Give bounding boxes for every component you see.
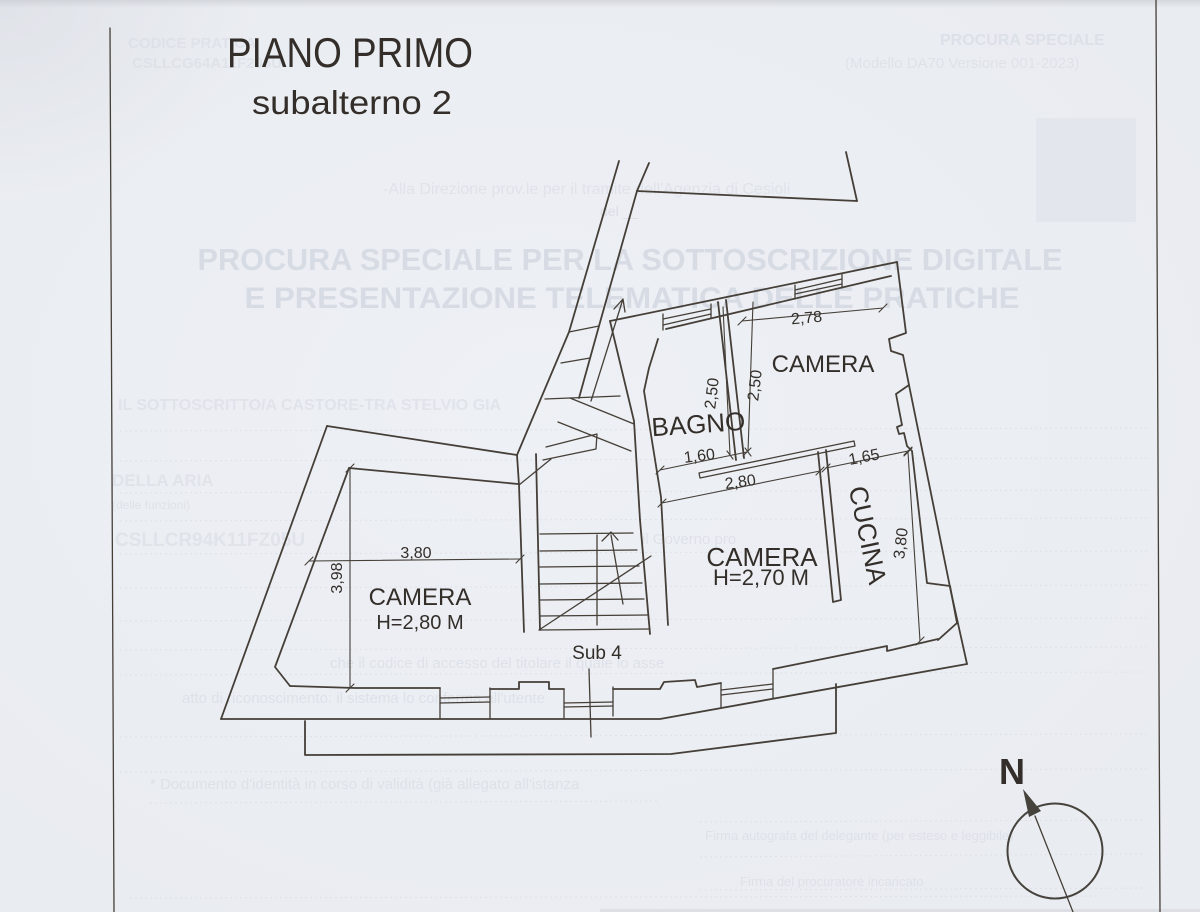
svg-text:H=2,70 M: H=2,70 M	[713, 565, 809, 590]
svg-text:CAMERA: CAMERA	[772, 351, 875, 378]
svg-text:IL SOTTOSCRITTO/A CASTORE-TRA: IL SOTTOSCRITTO/A CASTORE-TRA STELVIO GI…	[118, 397, 502, 414]
svg-text:2,78: 2,78	[790, 309, 823, 329]
svg-text:* Documento d'identità in cor: * Documento d'identità in corso di valid…	[150, 776, 580, 793]
svg-text:3,80: 3,80	[400, 545, 431, 562]
svg-text:H=2,80 M: H=2,80 M	[376, 612, 463, 634]
svg-text:DELLA ARIA: DELLA ARIA	[112, 471, 214, 490]
svg-text:PIANO PRIMO: PIANO PRIMO	[227, 29, 473, 76]
svg-text:Sub 4: Sub 4	[572, 643, 622, 664]
svg-text:subalterno 2: subalterno 2	[252, 84, 452, 121]
svg-text:(delle funzioni): (delle funzioni)	[112, 498, 190, 512]
svg-text:CSLLCR94K11FZ05U: CSLLCR94K11FZ05U	[115, 530, 305, 551]
svg-text:CAMERA: CAMERA	[369, 584, 472, 611]
svg-text:(Modello DA70 Versione 001-202: (Modello DA70 Versione 001-2023)	[845, 55, 1079, 72]
svg-text:3,98: 3,98	[329, 562, 346, 593]
svg-text:N: N	[999, 751, 1025, 792]
svg-text:Firma del procuratore incarica: Firma del procuratore incaricato	[740, 874, 924, 889]
svg-text:PROCURA SPECIALE PER LA SOTTOS: PROCURA SPECIALE PER LA SOTTOSCRIZIONE D…	[198, 242, 1063, 277]
svg-text:Firma autografa del delegante: Firma autografa del delegante (per estes…	[705, 828, 1014, 843]
svg-text:PROCURA SPECIALE: PROCURA SPECIALE	[940, 32, 1105, 49]
